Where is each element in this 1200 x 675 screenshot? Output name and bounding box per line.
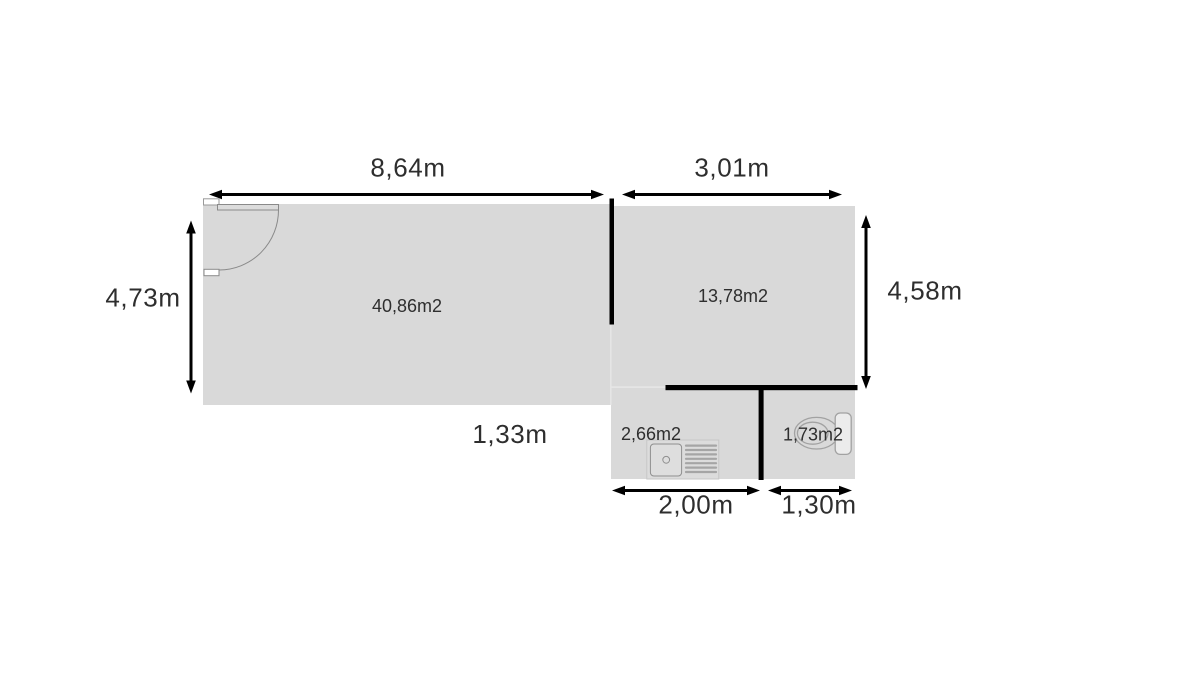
svg-text:3,01m: 3,01m: [694, 153, 769, 183]
svg-text:1,30m: 1,30m: [781, 490, 856, 520]
svg-text:1,33m: 1,33m: [472, 419, 547, 449]
svg-text:4,58m: 4,58m: [887, 276, 962, 306]
svg-text:40,86m2: 40,86m2: [372, 296, 442, 316]
svg-text:8,64m: 8,64m: [370, 153, 445, 183]
svg-text:13,78m2: 13,78m2: [698, 286, 768, 306]
svg-text:4,73m: 4,73m: [105, 283, 180, 313]
svg-text:2,00m: 2,00m: [658, 490, 733, 520]
svg-text:1,73m2: 1,73m2: [783, 424, 843, 444]
svg-text:2,66m2: 2,66m2: [621, 424, 681, 444]
